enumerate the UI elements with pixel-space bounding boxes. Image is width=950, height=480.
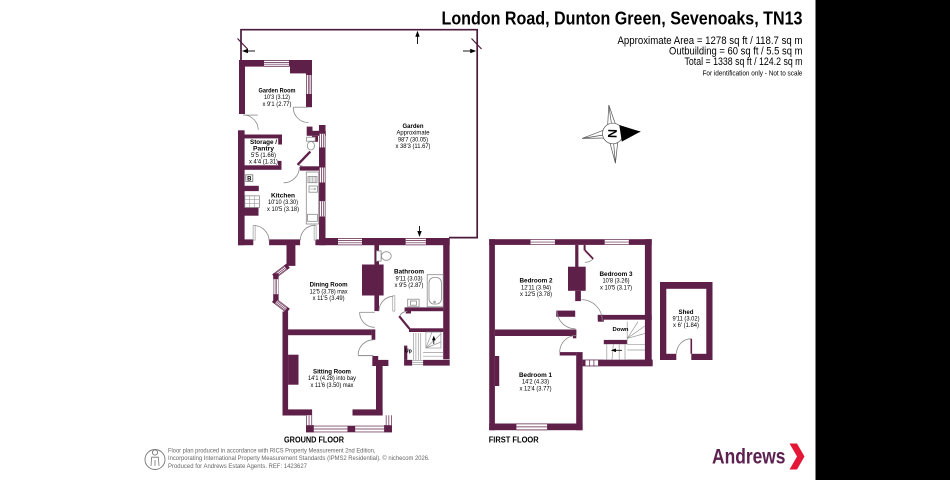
svg-text:Total = 1338 sq ft / 124.2 sq: Total = 1338 sq ft / 124.2 sq m xyxy=(685,56,803,68)
svg-text:x 9'1 (2.77): x 9'1 (2.77) xyxy=(263,101,292,108)
svg-text:x 6' (1.84): x 6' (1.84) xyxy=(673,322,699,329)
svg-text:For identification only - Not: For identification only - Not to scale xyxy=(703,68,803,77)
svg-text:x 10'5 (3.18): x 10'5 (3.18) xyxy=(267,206,299,213)
svg-text:FIRST FLOOR: FIRST FLOOR xyxy=(489,435,540,445)
svg-text:London Road, Dunton Green, Sev: London Road, Dunton Green, Sevenoaks, TN… xyxy=(442,9,803,29)
svg-text:x 4'4 (1.31): x 4'4 (1.31) xyxy=(249,158,278,165)
svg-text:GROUND FLOOR: GROUND FLOOR xyxy=(284,435,345,445)
svg-text:Incorporating International Pr: Incorporating International Property Mea… xyxy=(168,454,430,462)
svg-text:Up: Up xyxy=(405,348,413,354)
svg-text:x 11'5 (3.49): x 11'5 (3.49) xyxy=(313,295,345,302)
svg-text:x 12'5 (3.78): x 12'5 (3.78) xyxy=(520,291,552,298)
svg-text:x 12'4 (3.77): x 12'4 (3.77) xyxy=(520,385,552,392)
svg-text:N: N xyxy=(605,129,619,139)
svg-text:B: B xyxy=(247,176,252,182)
svg-text:x 10'5 (3.17): x 10'5 (3.17) xyxy=(600,284,632,291)
svg-text:x 9'5 (2.87): x 9'5 (2.87) xyxy=(395,282,424,289)
svg-text:Floor plan produced in accorda: Floor plan produced in accordance with R… xyxy=(168,447,376,454)
svg-text:x 38'3 (11.67): x 38'3 (11.67) xyxy=(396,143,431,150)
svg-text:Produced for Andrews Estate Ag: Produced for Andrews Estate Agents. REF:… xyxy=(168,463,307,470)
svg-text:Down: Down xyxy=(613,327,629,333)
svg-text:x 11'6 (3.50) max: x 11'6 (3.50) max xyxy=(311,382,355,389)
svg-text:Andrews: Andrews xyxy=(712,445,786,469)
